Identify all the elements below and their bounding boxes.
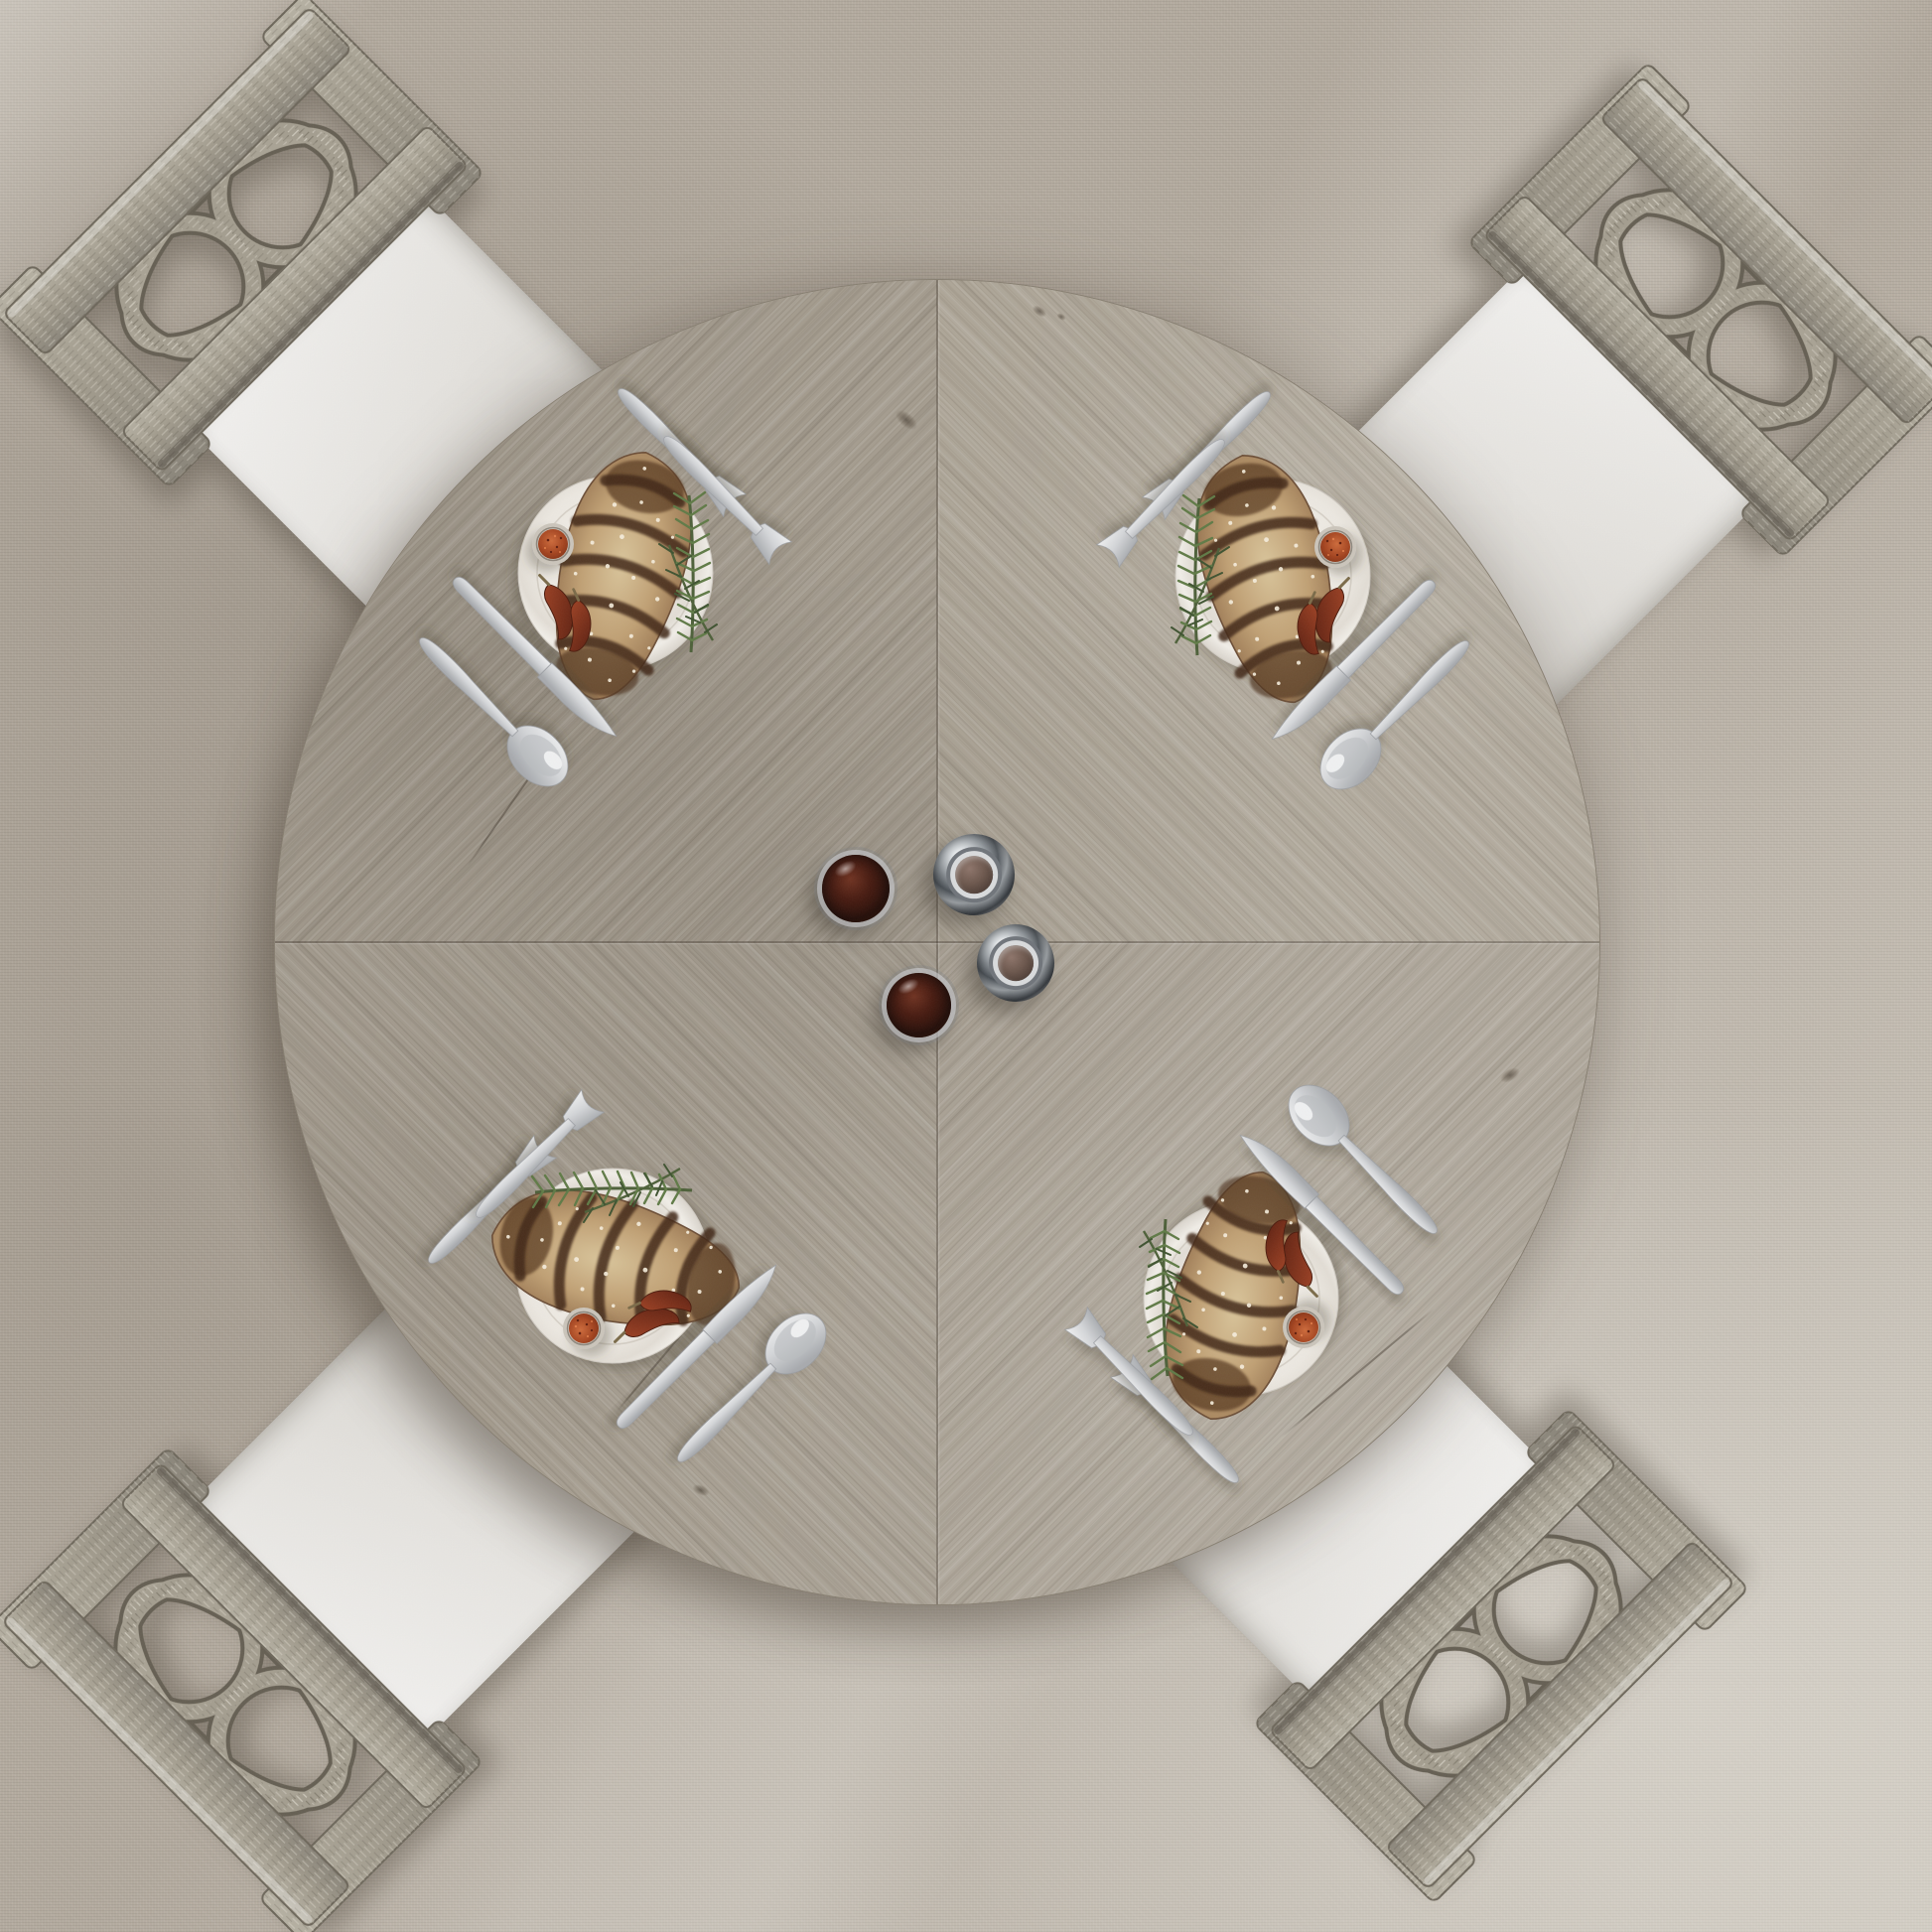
chrome-shaker <box>977 924 1054 1002</box>
wine-glass <box>822 855 890 922</box>
scene-stage <box>0 0 1932 1932</box>
chrome-shaker <box>933 834 1015 915</box>
wine-glass <box>887 973 951 1037</box>
drinks-layer <box>0 0 1932 1932</box>
